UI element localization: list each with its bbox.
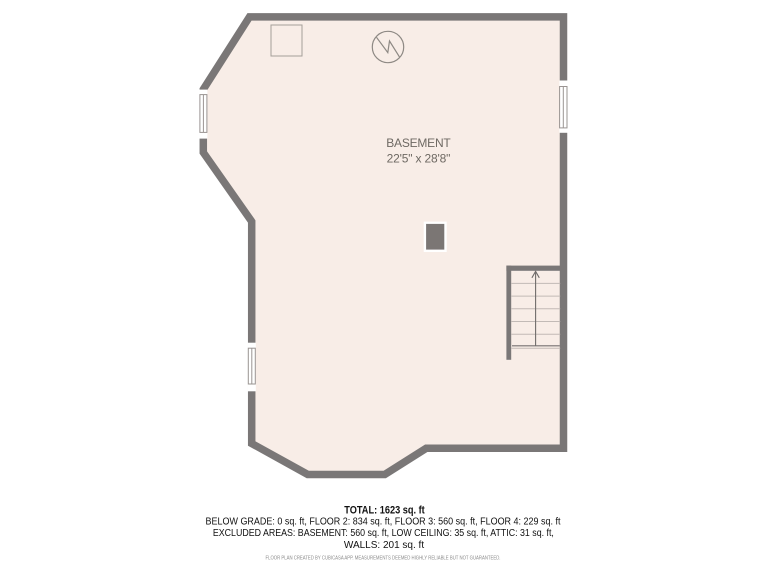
svg-text:TOTAL: 1623 sq. ft: TOTAL: 1623 sq. ft xyxy=(344,504,425,516)
svg-text:EXCLUDED AREAS: BASEMENT: 560: EXCLUDED AREAS: BASEMENT: 560 sq. ft, LO… xyxy=(213,528,554,539)
svg-text:22'5" x 28'8": 22'5" x 28'8" xyxy=(387,151,451,165)
svg-text:BELOW GRADE: 0 sq. ft, FLOOR 2: BELOW GRADE: 0 sq. ft, FLOOR 2: 834 sq. … xyxy=(206,516,561,527)
svg-text:WALLS: 201 sq. ft: WALLS: 201 sq. ft xyxy=(344,540,424,551)
svg-text:BASEMENT: BASEMENT xyxy=(386,136,451,150)
svg-text:FLOOR PLAN CREATED BY CUBICASA: FLOOR PLAN CREATED BY CUBICASA APP. MEAS… xyxy=(266,555,501,561)
